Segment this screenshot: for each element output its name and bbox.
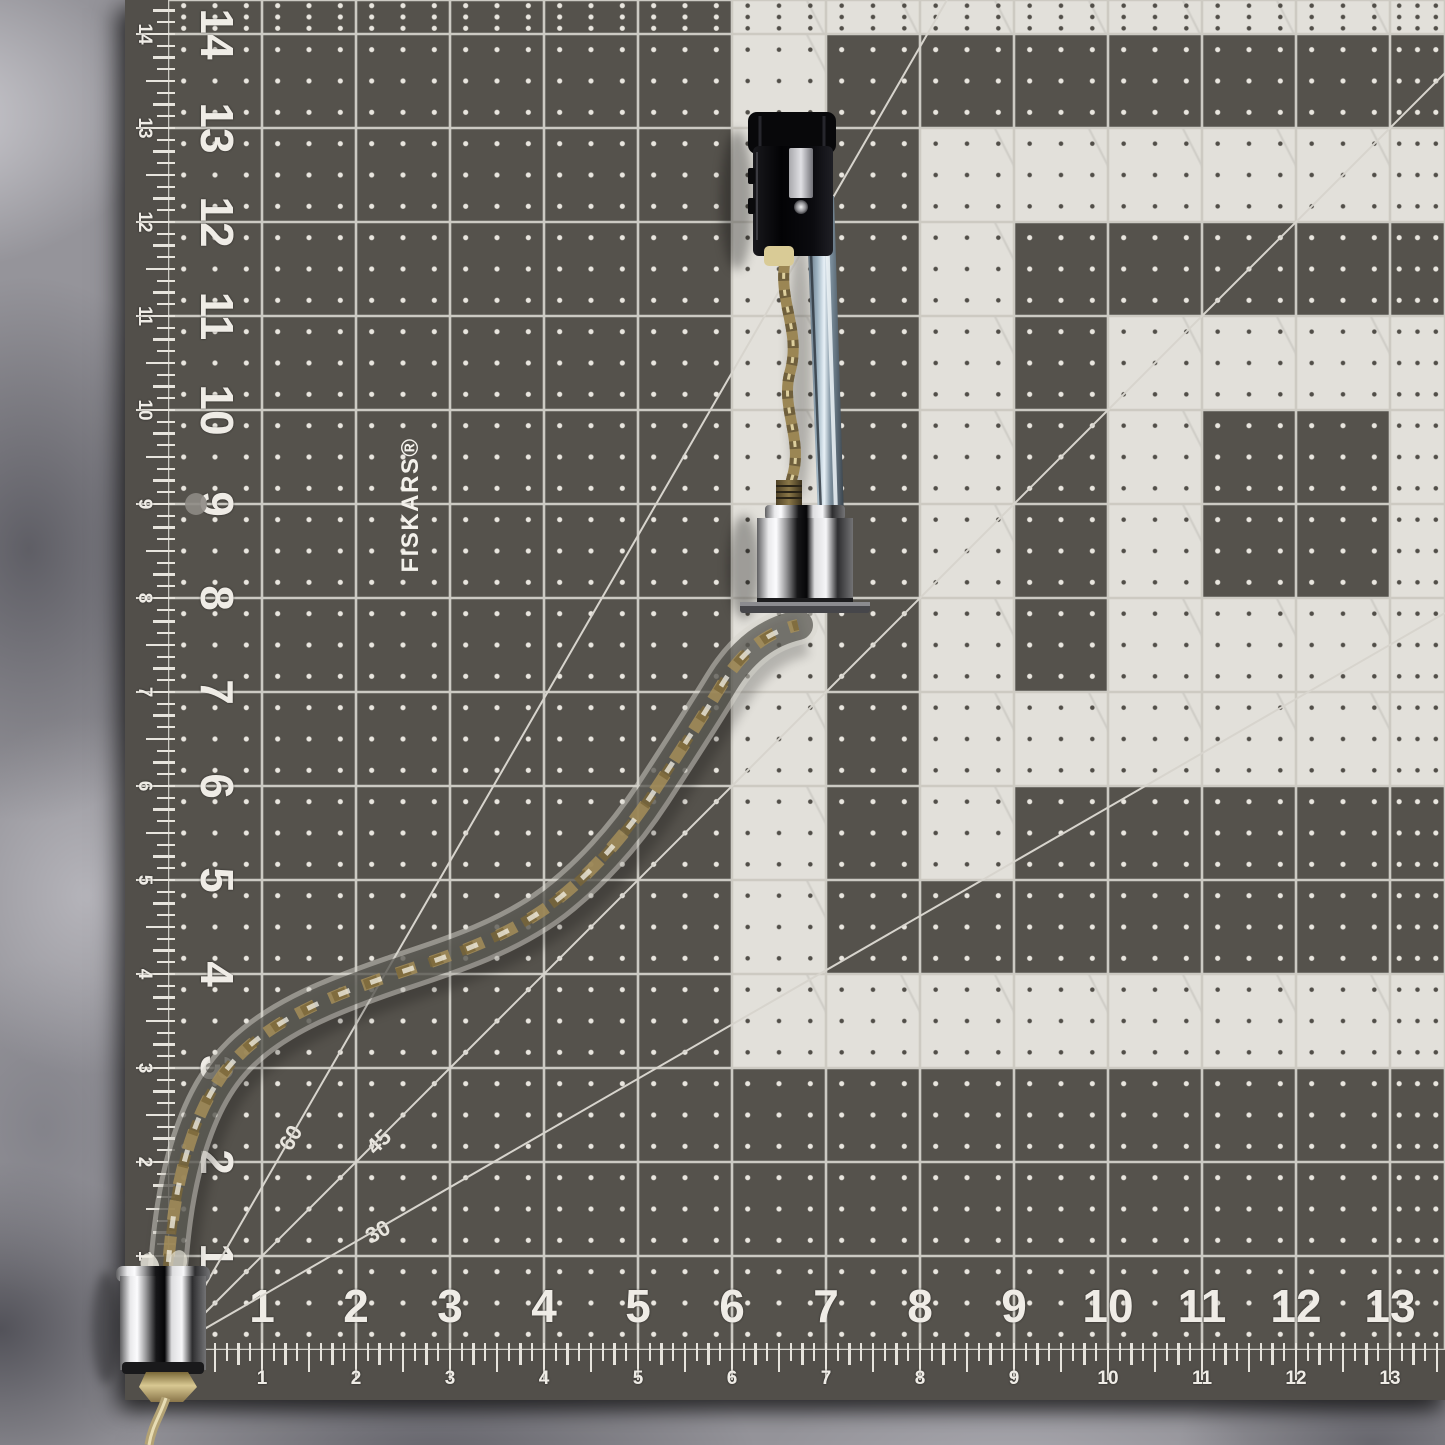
ruler-tick <box>707 1343 709 1365</box>
ruler-tick <box>1025 1343 1027 1361</box>
photo-scene: 14141313121211111010998877665544332211 1… <box>0 0 1445 1445</box>
ruler-tick <box>1224 1343 1226 1365</box>
ruler-tick <box>602 1343 604 1361</box>
bottom-ruler-number: 10 <box>1082 1279 1133 1333</box>
ruler-tick <box>343 1343 345 1361</box>
bottom-ruler-number: 5 <box>625 1279 651 1333</box>
ruler-tick <box>613 1343 615 1365</box>
bottom-ruler-number: 4 <box>539 1368 550 1390</box>
fiskars-brand-label: FISKARS® <box>398 430 424 580</box>
ruler-tick <box>202 1343 204 1361</box>
ruler-tick <box>284 1343 286 1365</box>
ruler-tick <box>367 1343 369 1361</box>
bottom-ruler-number: 8 <box>915 1368 926 1390</box>
ruler-tick <box>801 1343 803 1365</box>
ruler-tick <box>1283 1343 1285 1361</box>
ruler-tick <box>578 1343 580 1361</box>
bottom-ruler-number: 13 <box>1364 1279 1415 1333</box>
ruler-tick <box>1248 1343 1250 1372</box>
ruler-tick <box>660 1343 662 1365</box>
ruler-tick <box>1177 1343 1179 1365</box>
ruler-tick <box>1130 1343 1132 1365</box>
bottom-ruler-number: 13 <box>1379 1368 1400 1390</box>
ruler-tick <box>1213 1343 1215 1361</box>
ruler-tick <box>496 1343 498 1372</box>
bottom-ruler-number: 3 <box>445 1368 456 1390</box>
bottom-ruler-number: 7 <box>813 1279 839 1333</box>
ruler-tick <box>555 1343 557 1361</box>
ruler-tick <box>743 1343 745 1361</box>
bottom-ruler-number: 10 <box>1097 1368 1118 1390</box>
ruler-tick <box>696 1343 698 1361</box>
ruler-tick <box>978 1343 980 1361</box>
ruler-tick <box>590 1343 592 1372</box>
ruler-tick <box>672 1343 674 1361</box>
ruler-tick <box>531 1343 533 1361</box>
ruler-tick <box>1342 1343 1344 1372</box>
ruler-tick <box>872 1343 874 1372</box>
ruler-tick <box>519 1343 521 1365</box>
ruler-tick <box>1119 1343 1121 1361</box>
ruler-tick <box>766 1343 768 1361</box>
bottom-ruler-number: 2 <box>351 1368 362 1390</box>
ruler-tick <box>719 1343 721 1361</box>
ruler-tick <box>1036 1343 1038 1365</box>
ruler-tick <box>813 1343 815 1361</box>
ruler-tick <box>1354 1343 1356 1361</box>
ruler-tick <box>1365 1343 1367 1365</box>
ruler-tick <box>1436 1343 1438 1372</box>
ruler-tick <box>778 1343 780 1372</box>
bottom-ruler-number: 8 <box>907 1279 933 1333</box>
ruler-tick <box>1001 1343 1003 1361</box>
ruler-tick <box>790 1343 792 1361</box>
bottom-ruler-number: 6 <box>727 1368 738 1390</box>
ruler-tick <box>907 1343 909 1361</box>
ruler-tick <box>931 1343 933 1361</box>
ruler-tick <box>402 1343 404 1372</box>
ruler-tick <box>1095 1343 1097 1361</box>
ruler-tick <box>1318 1343 1320 1365</box>
ruler-tick <box>1060 1343 1062 1372</box>
ruler-tick <box>226 1343 228 1361</box>
ruler-tick <box>508 1343 510 1361</box>
ruler-tick <box>1072 1343 1074 1361</box>
ruler-tick <box>860 1343 862 1361</box>
ruler-tick <box>895 1343 897 1365</box>
ruler-tick <box>378 1343 380 1365</box>
ruler-tick <box>625 1343 627 1361</box>
bottom-ruler: 1122334455667788991010111112121313 <box>0 0 1445 1445</box>
ruler-tick <box>1307 1343 1309 1361</box>
bottom-ruler-number: 11 <box>1192 1368 1212 1390</box>
ruler-tick <box>414 1343 416 1361</box>
ruler-tick <box>472 1343 474 1365</box>
ruler-tick <box>237 1343 239 1365</box>
bottom-ruler-number: 1 <box>249 1279 275 1333</box>
ruler-tick <box>954 1343 956 1361</box>
ruler-tick <box>1048 1343 1050 1361</box>
ruler-tick <box>484 1343 486 1361</box>
bottom-ruler-number: 7 <box>821 1368 832 1390</box>
ruler-tick <box>884 1343 886 1361</box>
ruler-tick <box>1189 1343 1191 1361</box>
bottom-ruler-number: 12 <box>1285 1368 1306 1390</box>
ruler-tick <box>684 1343 686 1372</box>
ruler-tick <box>249 1343 251 1361</box>
ruler-tick <box>1154 1343 1156 1372</box>
ruler-tick <box>1166 1343 1168 1361</box>
bottom-ruler-number: 2 <box>343 1279 369 1333</box>
ruler-tick <box>214 1343 216 1372</box>
ruler-tick <box>1271 1343 1273 1365</box>
ruler-tick <box>566 1343 568 1365</box>
bottom-ruler-number: 6 <box>719 1279 745 1333</box>
ruler-tick <box>320 1343 322 1361</box>
ruler-tick <box>296 1343 298 1361</box>
ruler-tick <box>190 1343 192 1365</box>
ruler-tick <box>1377 1343 1379 1361</box>
ruler-tick <box>167 1343 169 1380</box>
ruler-tick <box>1142 1343 1144 1361</box>
ruler-tick <box>179 1343 181 1361</box>
bottom-ruler-number: 11 <box>1178 1279 1227 1333</box>
ruler-tick <box>649 1343 651 1361</box>
ruler-tick <box>989 1343 991 1365</box>
bottom-ruler-number: 9 <box>1001 1279 1027 1333</box>
ruler-tick <box>437 1343 439 1361</box>
ruler-tick <box>308 1343 310 1372</box>
ruler-tick <box>390 1343 392 1361</box>
ruler-tick <box>1236 1343 1238 1361</box>
ruler-tick <box>848 1343 850 1365</box>
ruler-tick <box>461 1343 463 1361</box>
ruler-tick <box>966 1343 968 1372</box>
ruler-tick <box>837 1343 839 1361</box>
ruler-tick <box>273 1343 275 1361</box>
ruler-tick <box>1424 1343 1426 1361</box>
ruler-tick <box>1083 1343 1085 1365</box>
bottom-ruler-number: 4 <box>531 1279 557 1333</box>
ruler-tick <box>754 1343 756 1365</box>
ruler-tick <box>425 1343 427 1365</box>
bottom-ruler-number: 3 <box>437 1279 463 1333</box>
bottom-ruler-number: 1 <box>257 1368 268 1390</box>
ruler-tick <box>942 1343 944 1365</box>
ruler-tick <box>331 1343 333 1365</box>
ruler-tick <box>1330 1343 1332 1361</box>
ruler-tick <box>1260 1343 1262 1361</box>
bottom-ruler-number: 12 <box>1270 1279 1321 1333</box>
bottom-ruler-number: 9 <box>1009 1368 1020 1390</box>
ruler-tick <box>1412 1343 1414 1365</box>
bottom-ruler-number: 5 <box>633 1368 644 1390</box>
ruler-tick <box>1401 1343 1403 1361</box>
